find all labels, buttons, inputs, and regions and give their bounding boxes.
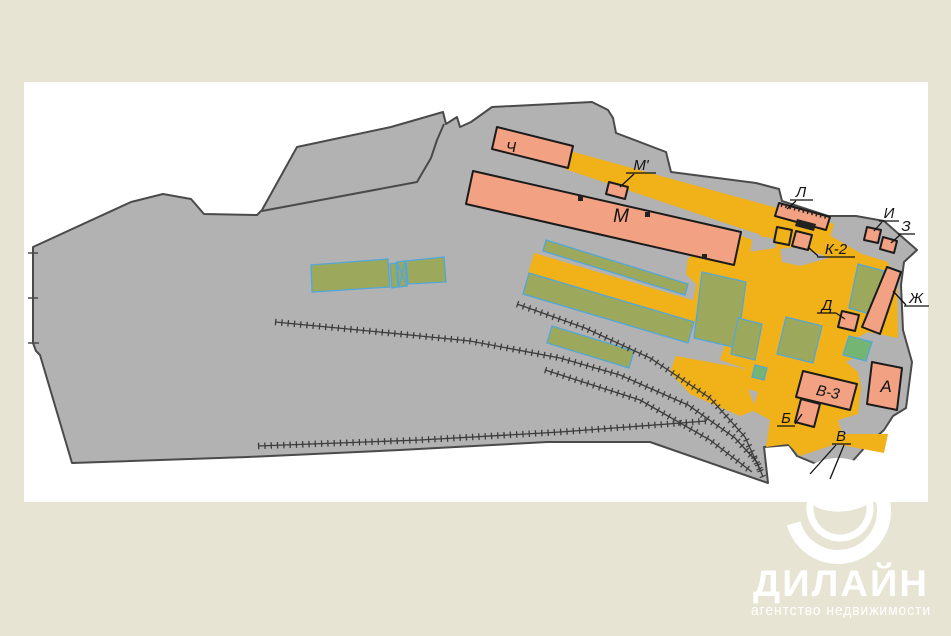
- green-alt-area-2: [752, 365, 767, 380]
- logo-tagline: агентство недвижимости: [751, 602, 931, 619]
- site-plan-page: Ч М' М Л К-2 И З Ж Д А В-3 Б В ДИЛАЙН аг…: [0, 0, 951, 636]
- green-area-west-2: [406, 257, 446, 284]
- label-zh: Ж: [908, 290, 924, 307]
- label-l: Л: [795, 184, 807, 201]
- label-d: Д: [820, 297, 833, 314]
- label-k2: К-2: [825, 241, 848, 258]
- label-m-prime: М': [633, 157, 649, 174]
- building-k2-yellow: [774, 227, 792, 245]
- building-i: [864, 227, 881, 243]
- building-d: [838, 311, 859, 331]
- green-area-south-1: [777, 317, 822, 363]
- label-ch: Ч: [506, 139, 517, 156]
- label-i: И: [884, 205, 895, 222]
- label-v: В: [836, 428, 846, 445]
- planting-x-square: [397, 261, 407, 287]
- label-a: А: [879, 377, 891, 396]
- logo-title: ДИЛАЙН: [753, 562, 929, 604]
- label-b: Б: [781, 410, 791, 427]
- label-z: З: [901, 218, 910, 235]
- logo-wordmark: ДИЛАЙН агентство недвижимости: [751, 562, 931, 619]
- green-area-west-1: [311, 259, 390, 292]
- label-m: М: [613, 206, 629, 227]
